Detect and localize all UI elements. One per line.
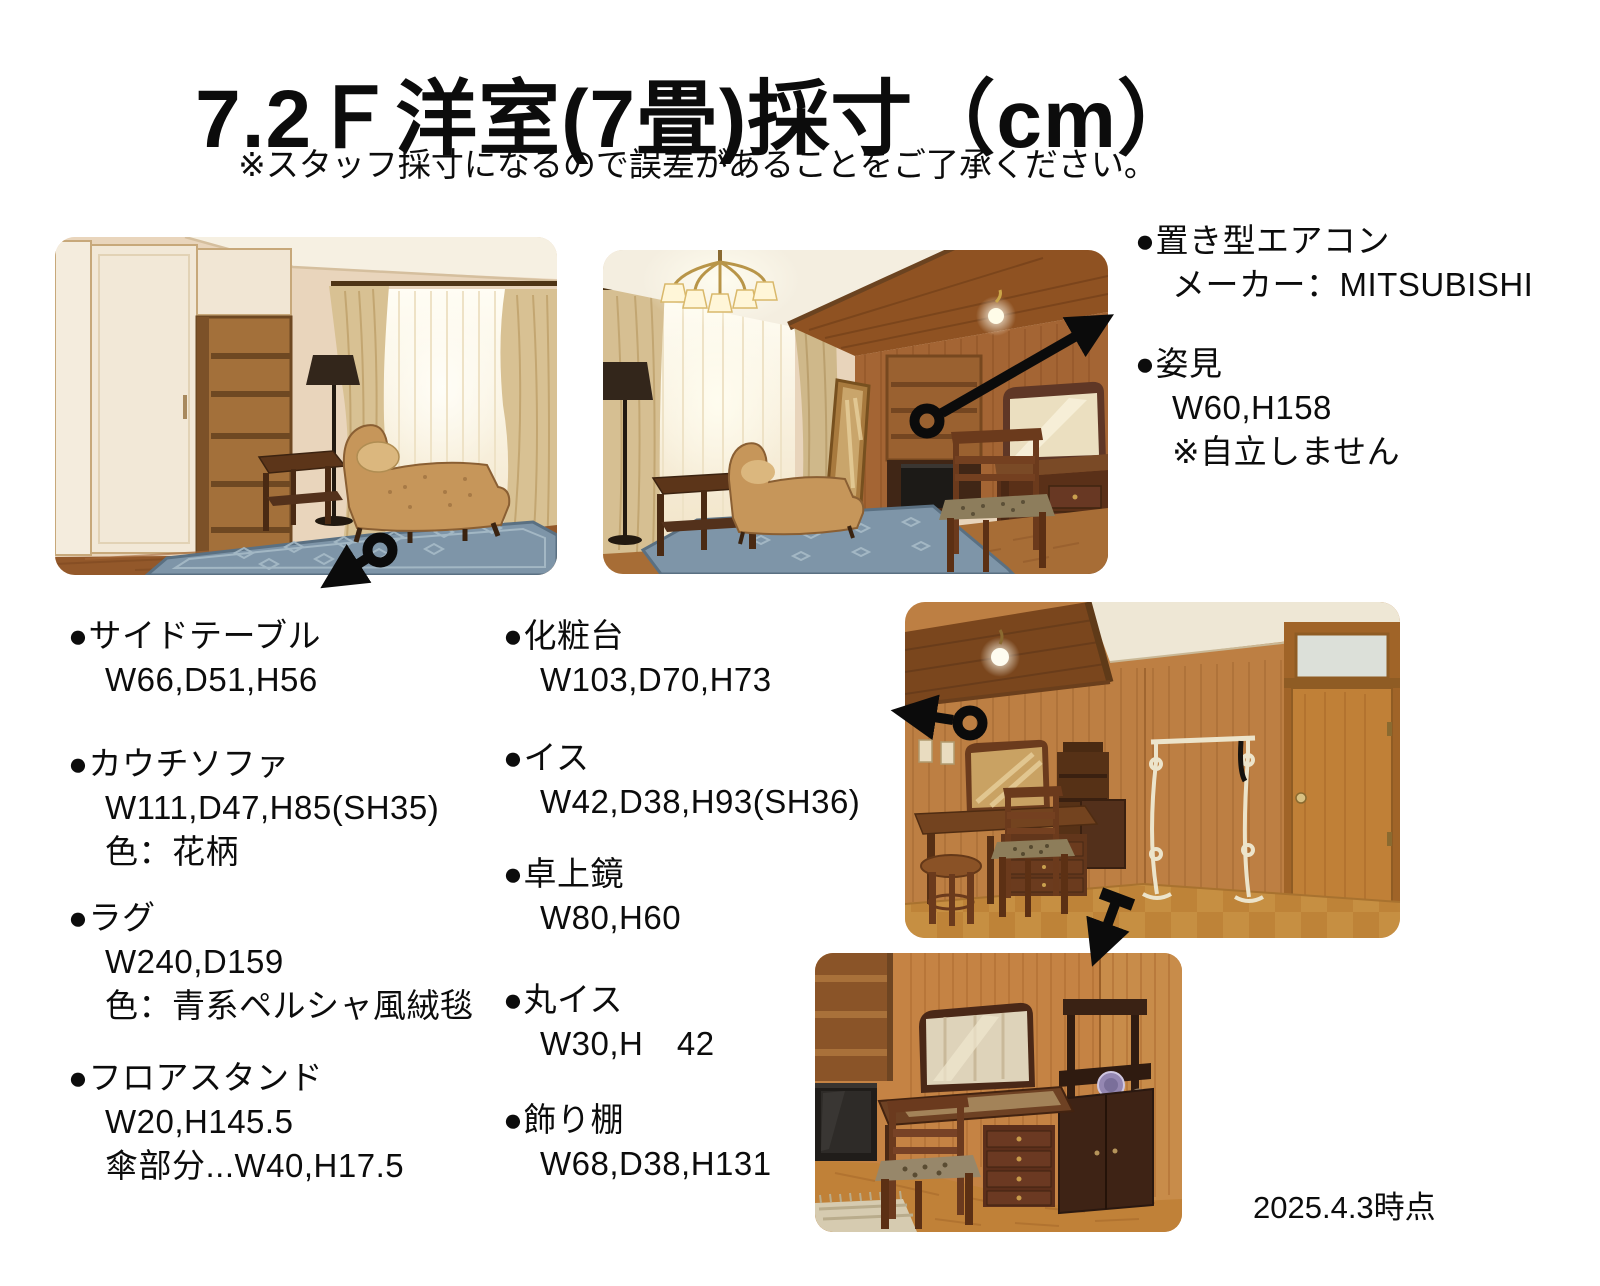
bullet-icon: ● [503,1101,523,1138]
annotation-title: ●カウチソファ [68,742,439,786]
bullet-icon: ● [68,617,88,654]
annotation-floor-ac: ●置き型エアコン メーカー：MITSUBISHI [1135,219,1533,307]
item-measurements: W240,D159 [68,940,474,984]
annotation-full-length-mirror: ●姿見 W60,H158 ※自立しません [1135,342,1400,474]
annotation-title: ●丸イス [503,978,715,1022]
annotation-title: ●姿見 [1135,342,1400,386]
annotation-chair: ●イス W42,D38,H93(SH36) [503,736,860,824]
item-measurements: W42,D38,H93(SH36) [503,780,860,824]
bullet-icon: ● [503,981,523,1018]
annotation-table-mirror: ●卓上鏡 W80,H60 [503,852,681,940]
dresser-and-rack-illustration [905,602,1400,938]
item-name: カウチソファ [88,745,289,782]
bullet-icon: ● [503,617,523,654]
item-name: 姿見 [1155,345,1222,382]
annotation-title: ●イス [503,736,860,780]
desk-closeup-illustration [815,953,1182,1232]
page-subtitle: ※スタッフ採寸になるので誤差があることをご了承ください。 [0,138,1395,186]
item-name: 置き型エアコン [1155,222,1390,259]
annotation-vanity: ●化粧台 W103,D70,H73 [503,614,772,702]
item-color: 色：花柄 [68,830,439,874]
bullet-icon: ● [503,855,523,892]
item-measurements: W111,D47,H85(SH35) [68,786,439,830]
item-measurements: W80,H60 [503,896,681,940]
annotation-title: ●化粧台 [503,614,772,658]
date-note: 2025.4.3時点 [1253,1182,1436,1227]
item-measurements: 傘部分...W40,H17.5 [68,1144,404,1188]
annotation-title: ●ラグ [68,896,474,940]
item-measurements: W60,H158 [1135,386,1400,430]
photo-room-overview-right [603,250,1108,574]
annotation-rug: ●ラグ W240,D159 色：青系ペルシャ風絨毯 [68,896,474,1028]
item-maker: メーカー：MITSUBISHI [1135,263,1533,307]
item-name: 卓上鏡 [523,855,624,892]
item-measurements: W103,D70,H73 [503,658,772,702]
annotation-title: ●飾り棚 [503,1098,772,1142]
item-name: 丸イス [523,981,623,1018]
item-name: イス [523,739,589,776]
measurement-sheet: 7.2Ｆ洋室(7畳)採寸（cm） ※スタッフ採寸になるので誤差があることをご了承… [0,0,1600,1286]
item-name: サイドテーブル [88,617,321,654]
item-name: フロアスタンド [88,1059,323,1096]
room-overview-left-illustration [55,237,557,575]
bullet-icon: ● [68,899,88,936]
bullet-icon: ● [1135,222,1155,259]
item-measurements: W30,H 42 [503,1022,715,1066]
annotation-couch-sofa: ●カウチソファ W111,D47,H85(SH35) 色：花柄 [68,742,439,874]
annotation-display-shelf: ●飾り棚 W68,D38,H131 [503,1098,772,1186]
room-overview-right-illustration [603,250,1108,574]
photo-desk-closeup [815,953,1182,1232]
annotation-title: ●サイドテーブル [68,614,321,658]
bullet-icon: ● [1135,345,1155,382]
item-note: ※自立しません [1135,430,1400,474]
item-name: 化粧台 [523,617,624,654]
annotation-side-table: ●サイドテーブル W66,D51,H56 [68,614,321,702]
annotation-title: ●卓上鏡 [503,852,681,896]
item-name: 飾り棚 [523,1101,624,1138]
item-measurements: W20,H145.5 [68,1100,404,1144]
annotation-round-stool: ●丸イス W30,H 42 [503,978,715,1066]
bullet-icon: ● [68,1059,88,1096]
photo-dresser-and-rack [905,602,1400,938]
photo-room-overview-left [55,237,557,575]
item-measurements: W68,D38,H131 [503,1142,772,1186]
item-color: 色：青系ペルシャ風絨毯 [68,984,474,1028]
bullet-icon: ● [503,739,523,776]
bullet-icon: ● [68,745,88,782]
annotation-title: ●置き型エアコン [1135,219,1533,263]
item-measurements: W66,D51,H56 [68,658,321,702]
annotation-title: ●フロアスタンド [68,1056,404,1100]
item-name: ラグ [88,899,155,936]
annotation-floor-stand: ●フロアスタンド W20,H145.5 傘部分...W40,H17.5 [68,1056,404,1188]
